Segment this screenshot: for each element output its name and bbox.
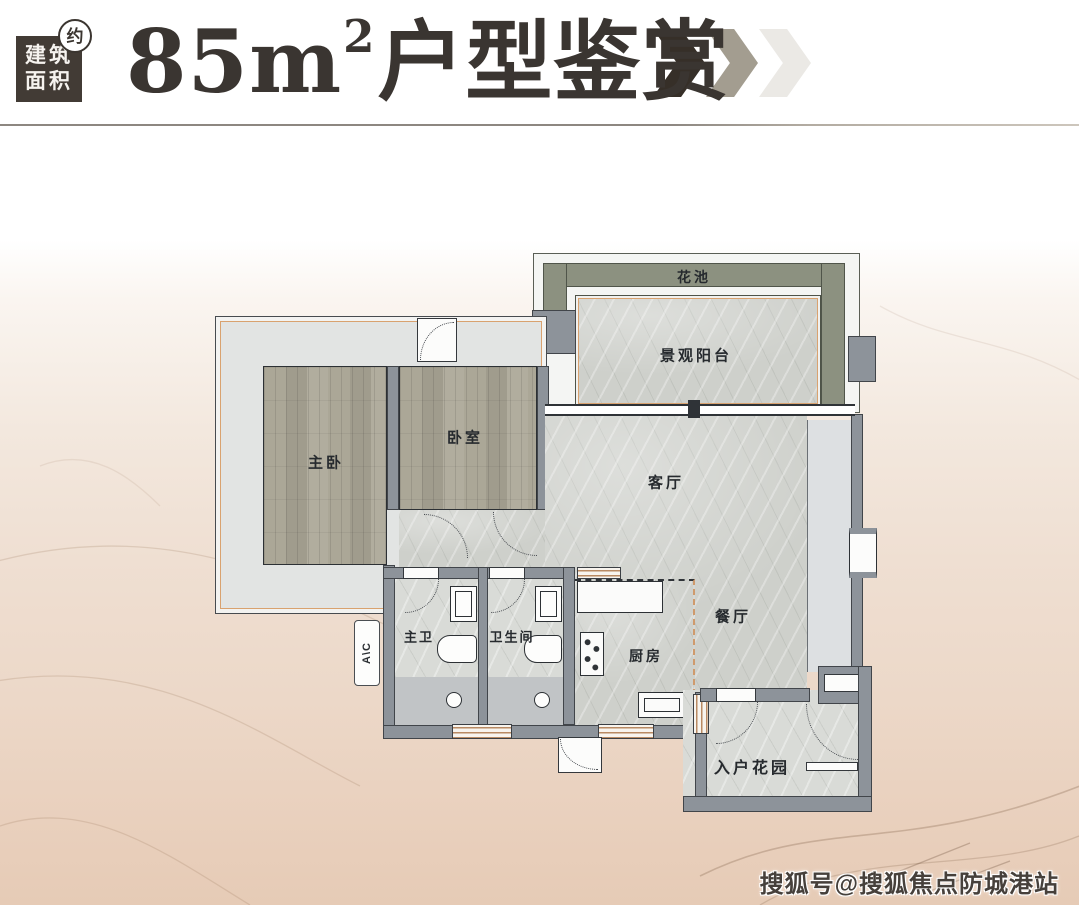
kitchen-left-wall <box>563 567 575 725</box>
entry-porch-inner <box>824 674 862 692</box>
entry-door-slab <box>806 762 858 771</box>
title-superscript: 2 <box>343 10 375 63</box>
kitchen-counter <box>577 581 663 613</box>
sink <box>534 692 550 708</box>
chevron-icon <box>759 29 811 97</box>
sliding-door-handle <box>688 400 700 418</box>
title-text: 户型鉴赏 <box>377 10 729 113</box>
bottom-wall <box>383 725 712 739</box>
master-bath-door <box>403 567 439 579</box>
window <box>577 567 621 579</box>
room-label-kitchen: 厨房 <box>629 646 663 666</box>
approx-circle-badge: 约 <box>58 19 92 53</box>
room-label-bathroom: 卫生间 <box>489 627 534 646</box>
bath-left-wall <box>383 565 395 739</box>
window <box>598 724 654 739</box>
garden-door <box>716 688 756 702</box>
bay-window-strip <box>807 420 851 672</box>
master-bath-wet-floor <box>395 677 478 725</box>
room-label-view-balcony: 景观阳台 <box>660 345 732 366</box>
wall-between-bedrooms <box>387 366 399 510</box>
bay-window-box <box>849 528 877 578</box>
garden-bottom-wall <box>683 796 872 812</box>
page-title: 85m2户型鉴赏 <box>126 8 729 118</box>
stove <box>580 632 604 676</box>
approx-text: 约 <box>67 27 84 46</box>
garden-right-wall <box>858 666 872 802</box>
room-label-bedroom: 卧室 <box>447 427 483 448</box>
area-badge-line2: 面积 <box>16 69 82 95</box>
room-label-master-bath: 主卫 <box>404 627 434 646</box>
wash-basin <box>450 586 477 622</box>
bathroom-door <box>489 567 525 579</box>
title-area-number: 85m <box>126 10 342 113</box>
room-label-flower-bed: 花池 <box>677 267 711 287</box>
bathroom-wet-floor <box>488 677 563 725</box>
room-label-living-room: 客厅 <box>648 472 684 493</box>
watermark-text: 搜狐号@搜狐焦点防城港站 <box>760 864 1059 899</box>
ac-unit-tag: A\C <box>354 620 380 686</box>
balcony-sliding-door <box>545 404 855 416</box>
room-label-dining-room: 餐厅 <box>715 606 751 627</box>
wall-right-notch <box>848 336 876 382</box>
room-label-entry-garden: 入户花园 <box>714 754 790 778</box>
header-divider <box>0 124 1079 126</box>
sink <box>446 692 462 708</box>
ac-unit-label: A\C <box>361 642 373 664</box>
window <box>452 724 512 739</box>
bath-separator-wall <box>478 567 488 725</box>
flower-bed-band-right <box>821 263 845 405</box>
wash-basin <box>535 586 562 622</box>
poster-page: 建筑 面积 约 85m2户型鉴赏 <box>0 0 1079 905</box>
kitchen-sink <box>638 692 686 718</box>
toilet <box>437 635 477 663</box>
room-label-master-bedroom: 主卧 <box>308 452 344 473</box>
